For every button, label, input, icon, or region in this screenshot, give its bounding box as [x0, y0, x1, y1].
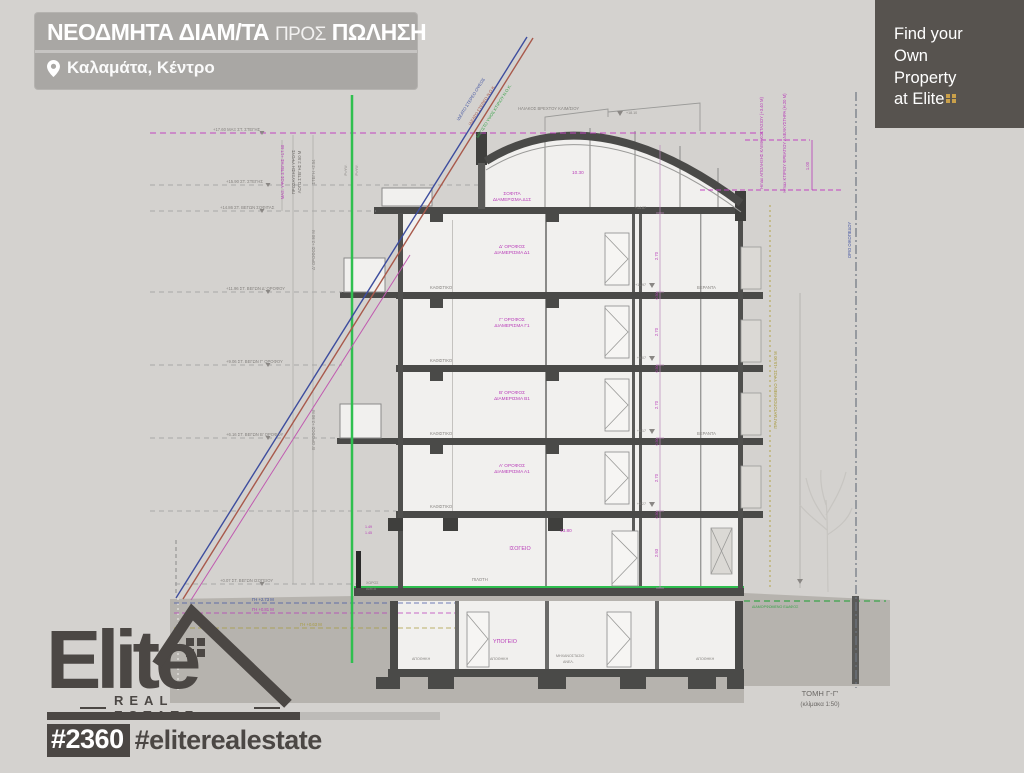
floor-label: ΥΠΟΓΕΙΟ	[493, 639, 517, 645]
mark-value: +11.97	[635, 283, 646, 287]
rotated-label: ΣΤΕΓΗ +2.54	[311, 159, 316, 185]
room-label: ΜΗΧΑΝΟΣΤΑΣΙΟ	[556, 654, 585, 658]
title-part-1: ΝΕΟΔΜΗΤΑ ΔΙΑΜ/ΤΑ	[47, 19, 269, 45]
mark-value: +3.27	[637, 502, 646, 506]
rotated-label: ΛΟΓΩ ΣΤΕΓΗΣ 2.50 Μ	[297, 150, 302, 193]
promo-box: Find your Own Property at Elite	[875, 0, 1024, 128]
left-dim-lines	[282, 135, 313, 584]
level-label: +15.90 ΣΤ. ΣΤΕΓΗΣ	[226, 179, 263, 184]
dim-value: 2.70	[654, 400, 659, 409]
listing-location: Καλαμάτα, Κέντρο	[35, 56, 417, 80]
level-label: +0.07 ΣΤ. ΒΕΓΩΝ ΙΣΟΓΕΙΟΥ	[220, 578, 273, 583]
level-label: +6.16 ΣΤ. ΒΕΓΩΝ Β' ΟΡΟΦΟΥ	[226, 432, 284, 437]
dim-value: 13.80	[560, 528, 572, 533]
room-label: ΚΑΘΙΣΤΙΚΟ	[430, 358, 453, 363]
rotated-label: Ρ=ΥΨ.	[344, 165, 348, 176]
hashtag-row: #2360 #eliterealestate	[47, 724, 322, 757]
floor-label: ΔΙΑΜΕΡΙΣΜΑ Β1	[494, 396, 530, 401]
mark-value: +14.87	[635, 206, 646, 210]
level-label: +9.06 ΣΤ. ΒΕΓΩΝ Γ' ΟΡΟΦΟΥ	[226, 359, 283, 364]
promo-line: Find your	[894, 24, 1024, 46]
mark-value: +6.17	[637, 429, 646, 433]
room-label: ΑΠΟΘΗΚΗ	[490, 657, 509, 661]
listing-title: ΝΕΟΔΜΗΤΑ ΔΙΑΜ/ΤΑ ΠΡΟΣ ΠΩΛΗΣΗ	[35, 13, 417, 46]
room-label: ΚΑΘΙΣΤΙΚΟ	[430, 285, 453, 290]
tree-sketch	[800, 470, 852, 592]
dim-value: 1.00	[805, 161, 810, 170]
right-label: Ηmax ΚΤΙΡΙΟΥ ΦΡΕΑΤΙΟΥ ΑΝΕΛΚΥΣΤΗΡΑ (Η.20 …	[782, 93, 787, 193]
level-label: +11.96 ΣΤ. ΒΕΓΩΝ Δ' ΟΡΟΦΟΥ	[226, 286, 285, 291]
window-icon	[946, 94, 956, 104]
floor-label: Α' ΟΡΟΦΟΣ	[499, 463, 525, 468]
room-label: ΚΑΘΙΣΤΙΚΟ	[430, 431, 453, 436]
room-label: ΧΩΡΟΣ	[366, 581, 379, 585]
listing-flyer: ΗΛΙΑΚΟΣ ΒΡΕΧΤΟΥ ΚΛΙΜ/ΣΙΟΥ +18.10 +17.60 …	[0, 0, 1024, 768]
section-title: ΤΟΜΗ Γ-Γ'	[802, 689, 839, 698]
dash-right	[254, 707, 280, 709]
dash-left	[80, 707, 106, 709]
dim-value: 1.49	[365, 525, 372, 529]
header-divider	[35, 50, 417, 53]
rotated-label: Δ' ΟΡΟΦΟΣ +2.90 Μ	[311, 230, 316, 270]
dim-value: 0.30	[655, 366, 659, 373]
floor-label: ΔΙΑΜΕΡΙΣΜΑ Γ1	[494, 323, 530, 328]
right-label: Ηmax ΑΠΟΛΗΞΗΣ ΚΛΙΜΑΚΟΣΤΑΣΙΟΥ (+3.40 Μ)	[759, 97, 764, 189]
brand-hashtag: #eliterealestate	[135, 725, 322, 756]
floor-label: Δ' ΟΡΟΦΟΣ	[499, 244, 525, 249]
room-label: ΒΕΡΑΝΤΑ	[697, 431, 716, 436]
brand-bar	[47, 712, 300, 720]
level-label: +14.86 ΣΤ. ΒΕΓΩΝ ΣΟΦΙΤΑΣ	[220, 205, 275, 210]
formed-ground-label: ΔΙΑΜΟΡΦΩΜΕΝΟ ΕΔΑΦΟΣ	[752, 605, 799, 609]
brand-block: Elite REAL ESTATE #2360 #eliterealestate	[0, 600, 460, 768]
floor-label: Γ' ΟΡΟΦΟΣ	[499, 317, 525, 322]
promo-line: Property	[894, 68, 1024, 90]
boundary-label: ΟΡΙΟ ΟΙΚΟΠΕΔΟΥ	[847, 222, 852, 259]
location-pin-icon	[47, 60, 60, 77]
rotated-label: Β' ΟΡΟΦΟΣ +2.90 Μ	[311, 410, 316, 450]
brand-bar-light	[300, 712, 440, 720]
room-label: ΑΠΟΘΗΚΗ	[696, 657, 715, 661]
rotated-label: ΠΡΟΣΑΥΞΗΣΗ ΥΨΟΥΣ	[291, 150, 296, 195]
floor-label: ΙΣΟΓΕΙΟ	[509, 546, 530, 552]
title-part-3: ΠΩΛΗΣΗ	[332, 19, 426, 45]
floor-label: ΣΟΦΙΤΑ	[503, 191, 521, 196]
dim-value: 2.93	[654, 548, 659, 557]
room-label: ΚΑΘΙΣΤΙΚΟ	[430, 504, 453, 509]
right-label: ΠΡΑΓΜΑΤΟΠΟΙΗΜΕΝΟ ΥΨΟΣ +15.90 Μ	[773, 351, 778, 429]
floor-label: ΔΙΑΜΕΡΙΣΜΑ Α1	[494, 469, 530, 474]
dim-value: 1.45	[365, 531, 372, 535]
room-label: ΑΜΕΑ	[366, 587, 377, 591]
title-part-2: ΠΡΟΣ	[275, 24, 326, 45]
level-label: +17.60 ΜΑΞ ΣΤ. ΣΤΕΓΗΣ	[213, 127, 261, 132]
dim-value: 0.30	[655, 293, 659, 300]
listing-id-badge: #2360	[47, 724, 130, 757]
dim-value: 2.70	[654, 473, 659, 482]
room-label: ΑΝΕΛ.	[563, 660, 574, 664]
stairhead-note: ΗΛΙΑΚΟΣ ΒΡΕΧΤΟΥ ΚΛΙΜ/ΣΙΟΥ	[518, 106, 579, 111]
room-label: ΒΕΡΑΝΤΑ	[697, 285, 716, 290]
rotated-label: Ρ=ΥΨ.	[355, 165, 359, 176]
floor-label: ΔΙΑΜΕΡΙΣΜΑ Δ1Σ	[493, 197, 531, 202]
dim-value: 2.70	[654, 251, 659, 260]
stairhead-level: +18.10	[626, 111, 637, 115]
dim-value: 10.30	[572, 170, 584, 175]
dim-value: 0.30	[655, 439, 659, 446]
promo-line: Own	[894, 46, 1024, 68]
floor-label: ΔΙΑΜΕΡΙΣΜΑ Δ1	[494, 250, 530, 255]
listing-header: ΝΕΟΔΜΗΤΑ ΔΙΑΜ/ΤΑ ΠΡΟΣ ΠΩΛΗΣΗ Καλαμάτα, Κ…	[35, 13, 417, 89]
location-text: Καλαμάτα, Κέντρο	[67, 58, 215, 78]
room-label: ΠΙΛΟΤΗ	[472, 577, 488, 582]
promo-line: at Elite	[894, 89, 1024, 111]
mark-value: +9.07	[637, 356, 646, 360]
floor-label: Β' ΟΡΟΦΟΣ	[499, 390, 525, 395]
dim-value: 2.70	[654, 327, 659, 336]
rotated-label: ΜΑΞ. ΥΨΟΣ ΣΤΕΓΗΣ +17.60	[280, 144, 285, 199]
section-scale: (κλίμακα 1:50)	[800, 701, 839, 708]
dim-value: 0.30	[655, 512, 659, 519]
